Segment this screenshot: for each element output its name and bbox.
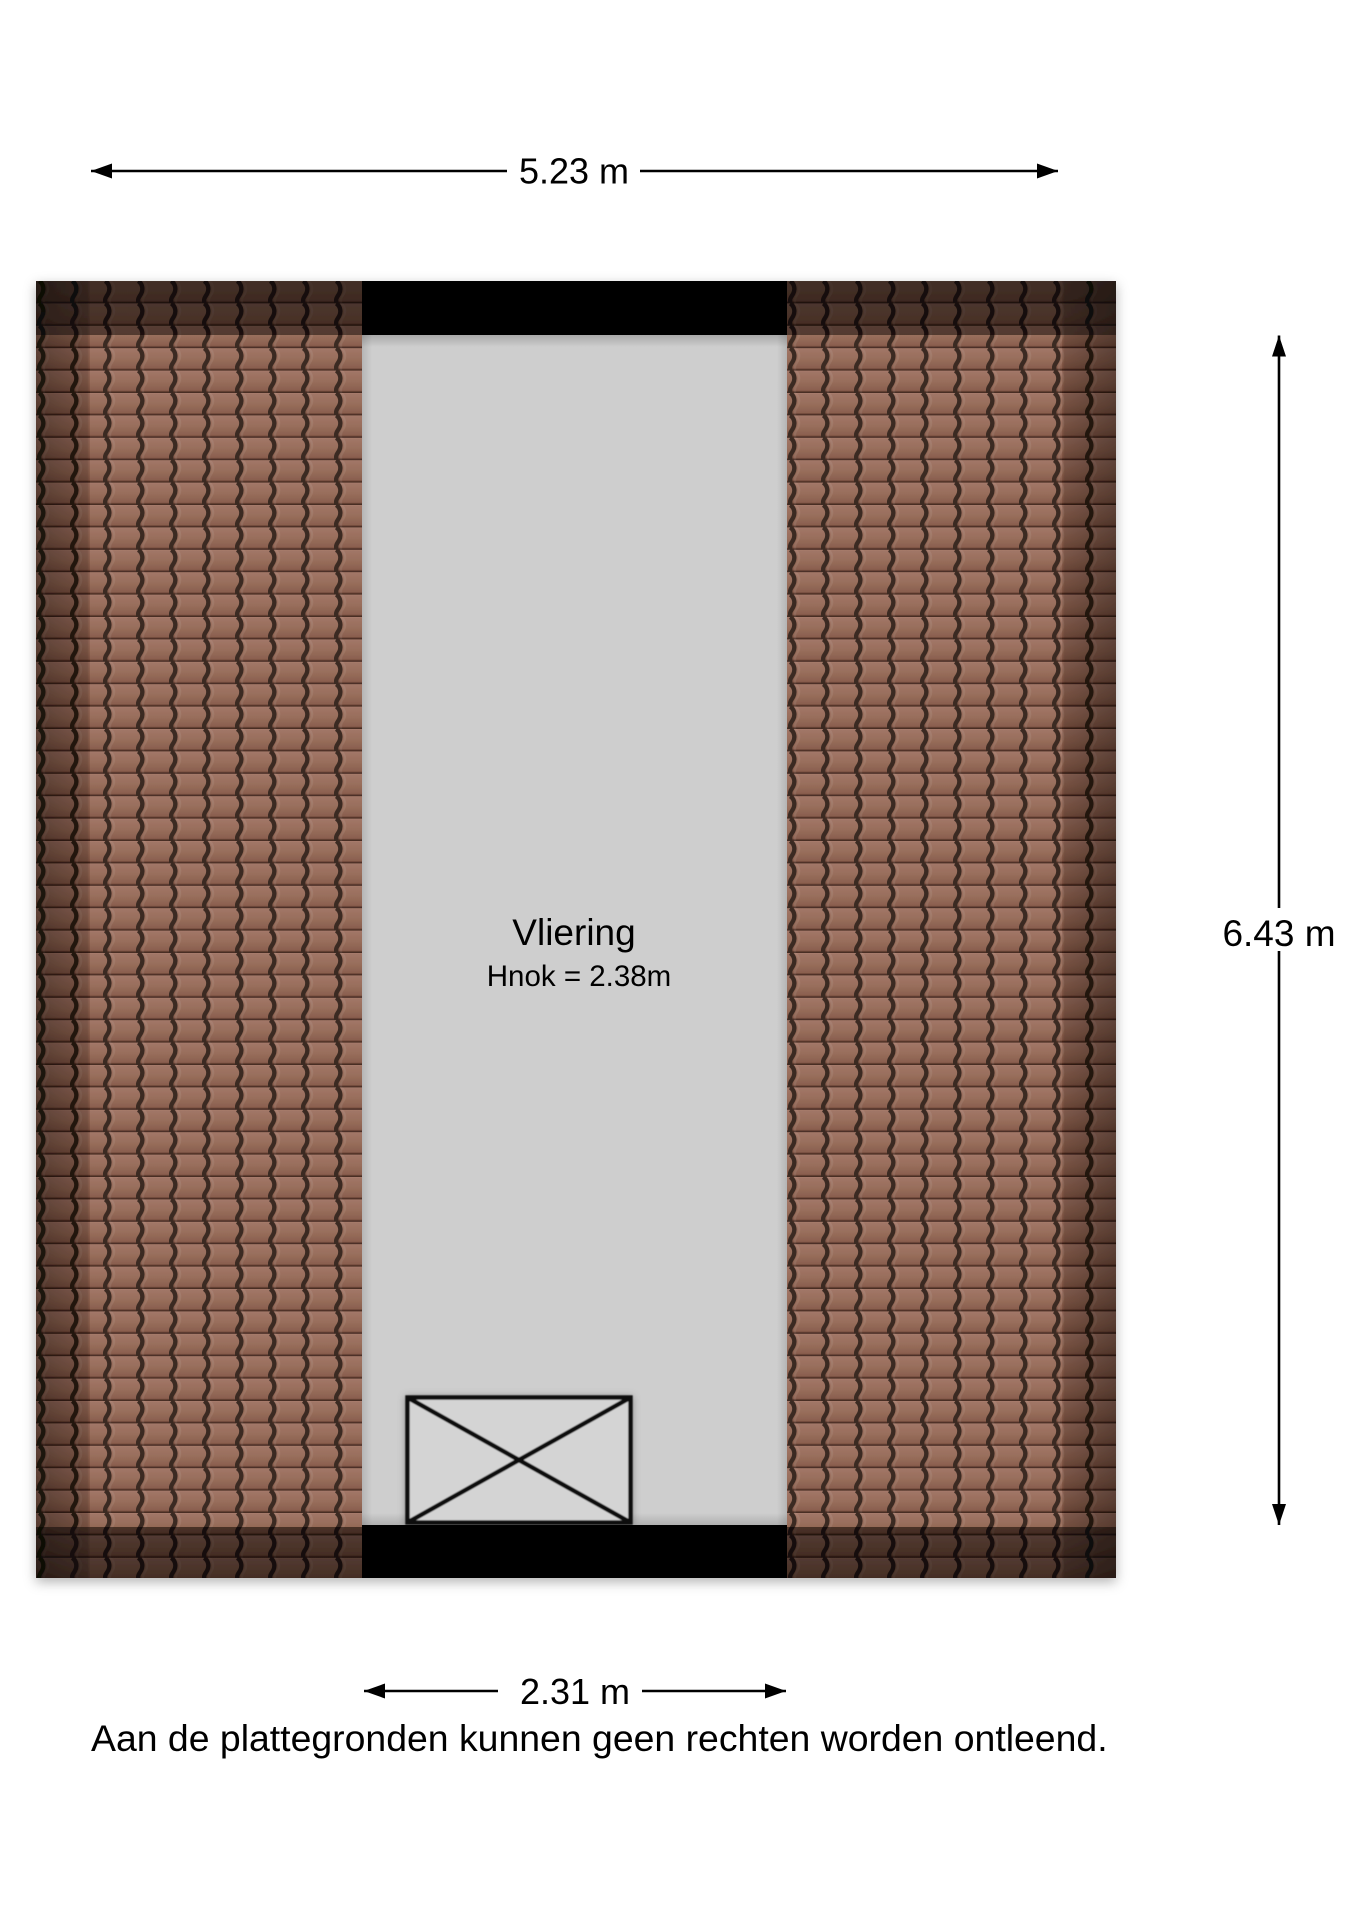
svg-text:Vliering: Vliering bbox=[512, 912, 635, 953]
svg-text:6.43 m: 6.43 m bbox=[1222, 913, 1335, 954]
svg-text:Hnok = 2.38m: Hnok = 2.38m bbox=[487, 960, 671, 993]
svg-text:5.23 m: 5.23 m bbox=[519, 151, 629, 192]
svg-text:Aan de plattegronden kunnen ge: Aan de plattegronden kunnen geen rechten… bbox=[91, 1717, 1108, 1759]
svg-text:2.31 m: 2.31 m bbox=[520, 1671, 630, 1712]
